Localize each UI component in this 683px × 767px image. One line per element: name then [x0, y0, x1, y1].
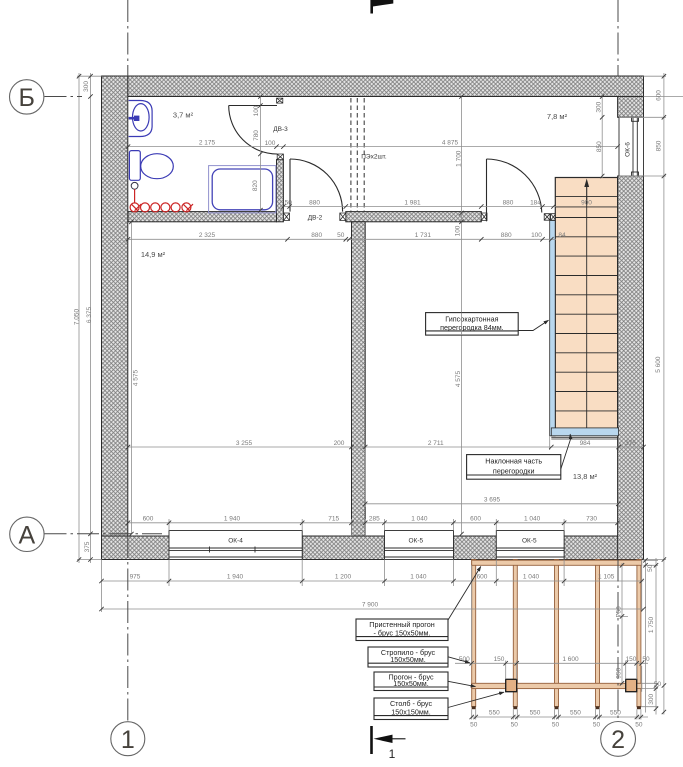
svg-text:50: 50 — [337, 232, 345, 239]
svg-text:перегородка 84мм.: перегородка 84мм. — [440, 323, 504, 332]
svg-text:1 040: 1 040 — [411, 515, 428, 522]
svg-text:1 040: 1 040 — [410, 574, 427, 581]
svg-text:3 255: 3 255 — [236, 440, 253, 447]
svg-text:3,7 м²: 3,7 м² — [173, 111, 194, 120]
svg-text:84: 84 — [558, 232, 566, 239]
svg-text:375: 375 — [625, 440, 636, 447]
svg-text:ОК-5: ОК-5 — [408, 538, 423, 545]
svg-text:150: 150 — [494, 656, 505, 663]
svg-text:1 981: 1 981 — [404, 199, 421, 206]
svg-text:ОК-4: ОК-4 — [228, 538, 243, 545]
svg-text:880: 880 — [501, 232, 512, 239]
svg-text:Б: Б — [18, 84, 34, 112]
svg-text:880: 880 — [309, 199, 320, 206]
svg-text:1 731: 1 731 — [415, 232, 432, 239]
svg-text:100: 100 — [531, 232, 542, 239]
svg-text:950: 950 — [616, 667, 623, 678]
svg-text:50: 50 — [285, 199, 293, 206]
svg-text:5 600: 5 600 — [655, 356, 662, 373]
svg-text:1 750: 1 750 — [648, 616, 655, 633]
svg-text:50: 50 — [470, 722, 478, 729]
svg-text:150: 150 — [626, 656, 637, 663]
svg-text:550: 550 — [610, 710, 621, 717]
svg-text:1: 1 — [121, 726, 135, 754]
svg-text:14,9 м²: 14,9 м² — [141, 250, 166, 259]
svg-text:880: 880 — [311, 232, 322, 239]
svg-text:100: 100 — [265, 140, 276, 147]
svg-text:1 200: 1 200 — [335, 574, 352, 581]
svg-text:750: 750 — [616, 606, 623, 617]
svg-text:820: 820 — [252, 180, 259, 191]
svg-text:13,8 м²: 13,8 м² — [573, 472, 598, 481]
svg-text:550: 550 — [570, 710, 581, 717]
svg-text:50: 50 — [642, 656, 650, 663]
svg-text:7.050: 7.050 — [74, 308, 81, 325]
svg-text:285: 285 — [369, 515, 380, 522]
svg-text:4 875: 4 875 — [442, 139, 459, 146]
svg-text:1 105: 1 105 — [598, 574, 615, 581]
svg-text:850: 850 — [596, 141, 603, 152]
svg-text:50: 50 — [511, 722, 519, 729]
svg-text:850: 850 — [656, 140, 663, 151]
svg-text:600: 600 — [477, 574, 488, 581]
svg-text:150х150мм.: 150х150мм. — [391, 707, 430, 716]
svg-text:600: 600 — [656, 90, 663, 101]
svg-text:6 375: 6 375 — [86, 306, 93, 323]
svg-text:3 695: 3 695 — [484, 497, 501, 504]
svg-text:50: 50 — [654, 681, 662, 688]
svg-text:ОК-5: ОК-5 — [522, 538, 537, 545]
svg-text:- брус 150х50мм.: - брус 150х50мм. — [374, 628, 431, 637]
svg-text:100: 100 — [455, 225, 462, 236]
svg-text:2 325: 2 325 — [199, 232, 216, 239]
svg-text:780: 780 — [253, 130, 260, 141]
svg-text:ДВ-2: ДВ-2 — [308, 215, 323, 222]
svg-text:ОК-6: ОК-6 — [625, 142, 632, 157]
svg-text:150х50мм.: 150х50мм. — [390, 655, 425, 664]
svg-text:7,8 м²: 7,8 м² — [547, 112, 568, 121]
svg-text:50: 50 — [593, 722, 601, 729]
svg-text:184: 184 — [530, 199, 541, 206]
svg-text:200: 200 — [334, 440, 345, 447]
svg-text:600: 600 — [143, 515, 154, 522]
svg-text:984: 984 — [580, 440, 591, 447]
svg-text:500: 500 — [459, 656, 470, 663]
svg-text:300: 300 — [83, 81, 90, 92]
svg-text:50: 50 — [552, 722, 560, 729]
svg-text:975: 975 — [130, 574, 141, 581]
svg-text:1 700: 1 700 — [456, 150, 463, 167]
svg-text:880: 880 — [503, 199, 514, 206]
svg-text:2: 2 — [611, 726, 625, 754]
svg-text:900: 900 — [581, 200, 592, 207]
svg-text:550: 550 — [489, 710, 500, 717]
svg-text:7 900: 7 900 — [362, 602, 379, 609]
svg-text:100: 100 — [253, 105, 260, 116]
svg-text:715: 715 — [328, 515, 339, 522]
svg-text:Наклонная часть: Наклонная часть — [485, 457, 542, 466]
svg-text:1 940: 1 940 — [227, 574, 244, 581]
svg-text:730: 730 — [586, 515, 597, 522]
svg-text:2 711: 2 711 — [428, 440, 444, 447]
svg-text:4 575: 4 575 — [133, 369, 140, 386]
svg-text:4 575: 4 575 — [455, 370, 462, 387]
svg-text:300: 300 — [648, 693, 655, 704]
svg-text:600: 600 — [470, 515, 481, 522]
svg-text:1: 1 — [389, 747, 396, 761]
svg-text:1 040: 1 040 — [523, 574, 540, 581]
svg-text:375: 375 — [84, 541, 91, 552]
svg-text:1 940: 1 940 — [224, 515, 241, 522]
svg-text:150х50мм.: 150х50мм. — [393, 679, 428, 688]
svg-text:300: 300 — [596, 101, 603, 112]
svg-text:550: 550 — [530, 710, 541, 717]
svg-text:2 175: 2 175 — [199, 139, 216, 146]
svg-text:перегородки: перегородки — [493, 467, 535, 476]
svg-text:А: А — [19, 522, 36, 550]
svg-text:1 040: 1 040 — [524, 515, 541, 522]
svg-text:50: 50 — [635, 722, 643, 729]
svg-text:1 600: 1 600 — [562, 656, 579, 663]
svg-text:ДВ-3: ДВ-3 — [273, 126, 288, 133]
svg-text:ПЭх2шт.: ПЭх2шт. — [361, 154, 387, 161]
svg-text:50: 50 — [647, 564, 654, 572]
